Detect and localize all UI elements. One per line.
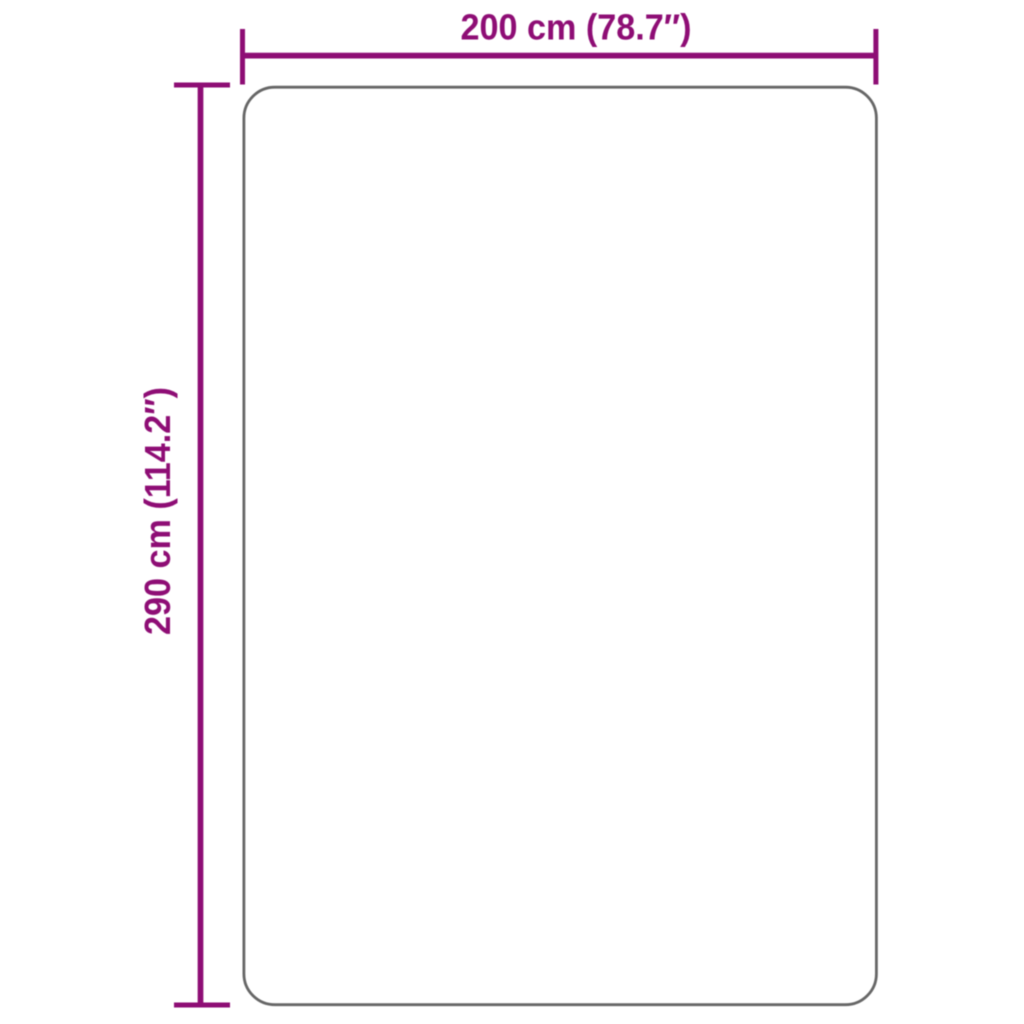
svg-text:290 cm (114.2″): 290 cm (114.2″) <box>137 387 178 635</box>
svg-text:200 cm (78.7″): 200 cm (78.7″) <box>461 7 692 48</box>
